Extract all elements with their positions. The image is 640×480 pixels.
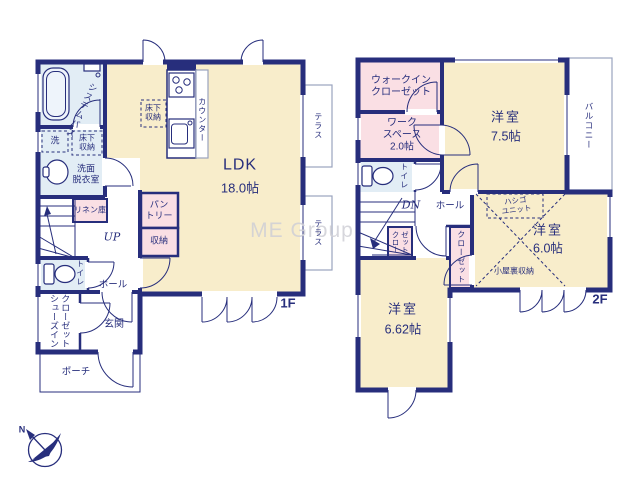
label-closet-a: クロー ゼット	[391, 231, 410, 254]
label-entrance: 玄関	[104, 319, 124, 331]
label-room1-name: 洋室	[491, 109, 521, 124]
label-stairs-down: DN	[402, 200, 420, 213]
label-toilet-2f: トイレ	[399, 163, 408, 190]
label-floor2: 2F	[592, 291, 607, 306]
label-room2-name: 洋室	[533, 222, 563, 237]
label-room3-name: 洋室	[388, 301, 418, 316]
label-terrace-lower: テラス	[313, 220, 322, 247]
label-terrace-upper: テラス	[313, 113, 322, 140]
wall-kitchen-stub	[167, 62, 196, 70]
label-attic-storage: 小屋裏収納	[494, 266, 534, 275]
label-room1-size: 7.5帖	[491, 130, 521, 145]
label-hall-1f: ホール	[99, 279, 128, 290]
compass-icon	[26, 429, 62, 467]
label-stairs-up: UP	[104, 232, 121, 245]
label-balcony: バルコニー	[584, 102, 594, 150]
label-hall-2f: ホール	[436, 200, 465, 211]
label-underfloor-kitchen: 床下 収納	[145, 104, 161, 123]
label-linen-closet: リネン庫	[74, 205, 106, 214]
watermark: ME Group	[250, 219, 354, 243]
label-floor1: 1F	[280, 295, 295, 310]
label-counter: カウンター	[197, 98, 206, 143]
stairs-1f	[38, 197, 75, 258]
label-storage: 収納	[150, 236, 168, 247]
label-washroom: 洗面 脱衣室	[72, 163, 99, 184]
kitchen-sink-icon	[169, 119, 194, 148]
label-room2-size: 6.0帖	[533, 242, 563, 257]
corridor-1f-fill	[105, 158, 140, 294]
toilet-icon-2f	[362, 166, 393, 186]
stove-icon	[169, 73, 194, 97]
label-walk-in-closet: ウォークイン クローゼット	[371, 75, 431, 99]
label-porch: ポーチ	[62, 366, 91, 377]
label-ladder-unit: ハシゴ ユニット	[500, 195, 532, 216]
label-pantry: パン トリー	[145, 199, 172, 220]
label-underfloor-bath: 床下 収納	[79, 134, 95, 153]
compass-north-label: N	[19, 425, 26, 436]
label-closet-b: クローゼット	[456, 230, 465, 284]
label-toilet-1f: トイレ	[75, 260, 84, 287]
label-room3-size: 6.62帖	[385, 323, 422, 338]
toilet-icon-1f	[44, 264, 75, 284]
label-shoes-in-closet: シューズイン クローゼット	[48, 294, 71, 348]
label-ldk-name: LDK	[223, 157, 257, 176]
label-workspace: ワーク スペース 2.0帖	[383, 117, 422, 152]
room-75-fill	[442, 62, 567, 192]
floorplan-canvas: システムバス 洗 床下 収納 洗面 脱衣室 リネン庫 UP トイレ ホール シュ…	[0, 0, 640, 480]
label-ldk-size: 18.0帖	[221, 180, 259, 195]
label-washer: 洗	[50, 136, 59, 147]
